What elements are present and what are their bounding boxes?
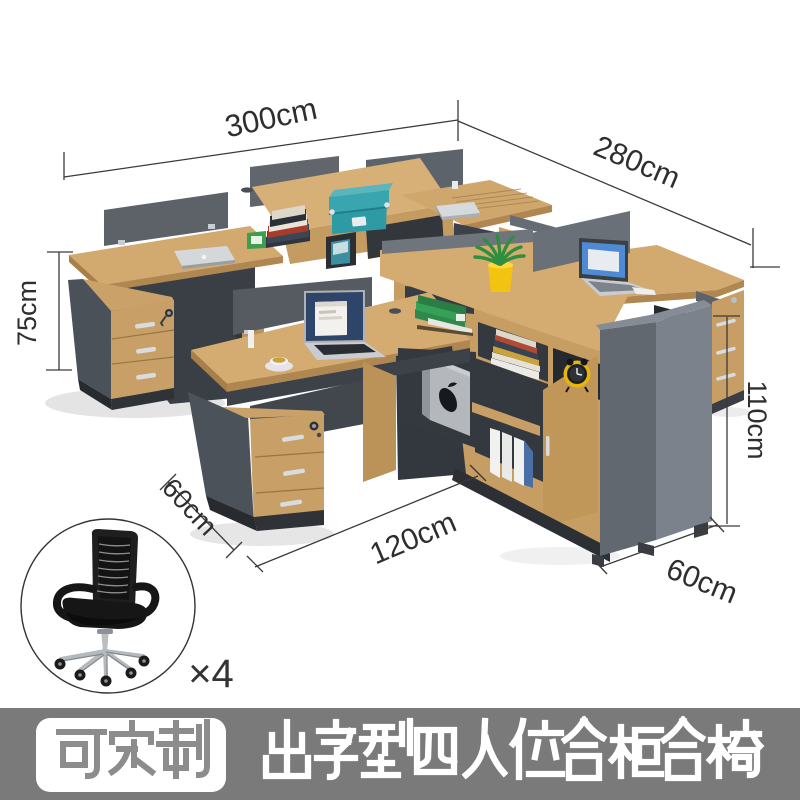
svg-text:×4: ×4 — [188, 652, 234, 696]
svg-text:75cm: 75cm — [12, 280, 42, 346]
svg-text:110cm: 110cm — [742, 380, 772, 459]
